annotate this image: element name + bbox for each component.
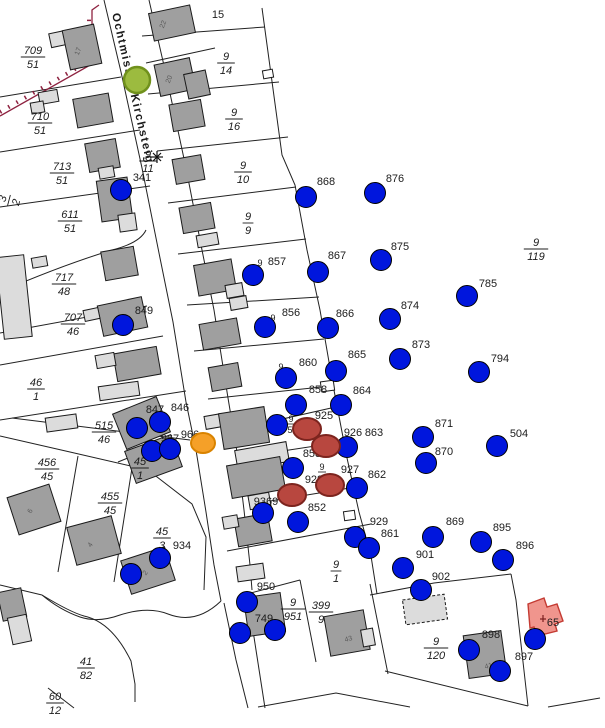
survey-point-blue[interactable]	[265, 620, 286, 641]
survey-point-blue[interactable]	[493, 550, 514, 571]
survey-point-blue[interactable]	[243, 265, 264, 286]
building	[218, 407, 269, 450]
parcel-numerator: 717	[55, 272, 74, 284]
point-label: 950	[257, 581, 275, 593]
point-label: 9	[319, 462, 324, 472]
parcel-number: 9120	[424, 636, 448, 662]
building	[236, 563, 265, 582]
survey-point-red[interactable]	[312, 435, 340, 457]
parcel-number: 910	[234, 160, 252, 186]
building	[229, 296, 248, 311]
point-label: 5	[287, 425, 292, 435]
parcel-numerator: 9	[333, 559, 339, 571]
building	[73, 93, 113, 128]
parcel-number: 51546	[92, 420, 116, 446]
point-label: 874	[401, 300, 419, 312]
parcel-boundary-line	[168, 187, 296, 203]
survey-point-red[interactable]	[278, 484, 306, 506]
map-viewport: Ochtmisser Kirchsteig 172220642434115341…	[0, 0, 605, 728]
parcel-denominator: 2	[10, 198, 23, 208]
survey-point-orange[interactable]	[191, 433, 215, 453]
building	[31, 256, 48, 268]
building	[98, 166, 115, 179]
parcel-denominator: 119	[527, 251, 545, 263]
parcel-denominator: 10	[237, 174, 250, 186]
parcel-number: 99	[243, 211, 254, 237]
point-label: 925	[315, 410, 333, 422]
point-label: 867	[328, 250, 346, 262]
point-label: 785	[479, 278, 497, 290]
point-label: 927	[341, 464, 359, 476]
point-label: 876	[386, 173, 404, 185]
parcel-denominator: 45	[104, 505, 117, 517]
point-label: 846	[171, 402, 189, 414]
point-label: 862	[368, 469, 386, 481]
shed	[262, 69, 273, 79]
survey-point-blue[interactable]	[253, 503, 274, 524]
point-label: 852	[308, 502, 326, 514]
parcel-numerator: 709	[24, 45, 42, 57]
survey-point-blue[interactable]	[230, 623, 251, 644]
survey-point-blue[interactable]	[127, 418, 148, 439]
parcel-numerator: 9	[223, 51, 229, 63]
survey-point-blue[interactable]	[160, 439, 181, 460]
point-label: 875	[391, 241, 409, 253]
parcel-denominator: 51	[64, 223, 76, 235]
parcel-boundary-line	[300, 580, 316, 662]
building	[184, 70, 211, 99]
parcel-numerator: 45	[156, 526, 169, 538]
building	[45, 414, 78, 432]
survey-point-blue[interactable]	[371, 250, 392, 271]
building	[113, 346, 161, 381]
point-label: 898	[482, 629, 500, 641]
building	[95, 352, 116, 368]
point-label: 895	[493, 522, 511, 534]
survey-point-blue[interactable]	[365, 183, 386, 204]
parcel-denominator: 951	[284, 611, 302, 623]
parcel-number: 71351	[50, 161, 74, 187]
parcel-boundary-line	[42, 595, 221, 620]
point-label: 866	[336, 308, 354, 320]
point-label: 870	[435, 446, 453, 458]
point-label: 929	[370, 516, 388, 528]
survey-point-blue[interactable]	[237, 592, 258, 613]
building	[199, 318, 241, 350]
point-label: 864	[353, 385, 371, 397]
parcel-numerator: 515	[95, 420, 114, 432]
building	[361, 628, 376, 647]
building	[101, 246, 139, 280]
parcel-numerator: 9	[231, 107, 237, 119]
point-label: 934	[173, 540, 191, 552]
parcel-numerator: 9	[145, 149, 151, 161]
point-label: 897	[515, 651, 533, 663]
survey-point-blue[interactable]	[413, 427, 434, 448]
parcel-number: 6012	[46, 691, 64, 717]
survey-point-blue[interactable]	[276, 368, 297, 389]
point-label: 869	[446, 516, 464, 528]
parcel-boundary-line	[187, 297, 319, 305]
point-label: 865	[348, 349, 366, 361]
building	[172, 155, 205, 185]
cadastral-map: Ochtmisser Kirchsteig 172220642434115341…	[0, 0, 605, 728]
parcel-number: 61151	[58, 209, 82, 235]
point-label: 504	[510, 428, 528, 440]
survey-point-blue[interactable]	[308, 262, 329, 283]
point-label: 873	[412, 339, 430, 351]
parcel-numerator: 46	[30, 377, 43, 389]
survey-point-blue[interactable]	[469, 362, 490, 383]
parcel-numerator: 9	[290, 597, 296, 609]
parcel-boundary-line	[0, 130, 140, 152]
parcel-numerator: 9	[240, 160, 246, 172]
point-label: 15	[212, 9, 224, 21]
point-label: 860	[299, 357, 317, 369]
survey-point-blue[interactable]	[111, 180, 132, 201]
survey-point-blue[interactable]	[318, 318, 339, 339]
building	[98, 381, 140, 400]
parcel-numerator: 60	[49, 691, 62, 703]
point-label: 794	[491, 353, 509, 365]
parcel-denominator: 16	[228, 121, 241, 133]
building	[196, 232, 219, 247]
shed	[343, 510, 355, 520]
point-label: 857	[268, 256, 286, 268]
parcel-number: 9119	[524, 237, 548, 263]
parcel-denominator: 82	[80, 670, 92, 682]
survey-point-red[interactable]	[316, 474, 344, 496]
parcel-number: 461	[27, 377, 45, 403]
point-label: 896	[516, 540, 534, 552]
parcel-denominator: 120	[427, 650, 446, 662]
parcel-denominator: 9	[245, 225, 251, 237]
point-label: 65	[547, 617, 559, 629]
parcel-boundary-line	[258, 693, 410, 707]
survey-point-blue[interactable]	[416, 453, 437, 474]
survey-point-blue[interactable]	[393, 558, 414, 579]
parcel-denominator: 51	[56, 175, 68, 187]
parcel-denominator: 9	[318, 614, 324, 626]
parcel-number: 45545	[98, 491, 122, 517]
building	[67, 516, 122, 566]
parcel-denominator: 1	[137, 470, 143, 482]
parcel-boundary-line	[157, 137, 288, 151]
survey-point-blue[interactable]	[471, 532, 492, 553]
parcel-denominator: 46	[67, 326, 80, 338]
parcel-number: 45645	[35, 457, 59, 483]
parcel-denominator: 1	[33, 391, 39, 403]
parcel-numerator: 455	[101, 491, 120, 503]
survey-point-blue[interactable]	[283, 458, 304, 479]
point-label: 856	[282, 307, 300, 319]
parcel-numerator: 611	[61, 209, 79, 221]
parcel-number: 9951	[281, 597, 305, 623]
survey-point-blue[interactable]	[487, 436, 508, 457]
parcel-denominator: 12	[49, 705, 61, 717]
survey-point-blue[interactable]	[255, 317, 276, 338]
building	[149, 5, 196, 41]
parcel-denominator: 11	[142, 163, 153, 175]
survey-point-blue[interactable]	[490, 661, 511, 682]
parcel-numerator: 399	[312, 600, 330, 612]
parcel-number: 71748	[52, 272, 76, 298]
survey-point-blue[interactable]	[150, 412, 171, 433]
point-label: 863	[365, 427, 383, 439]
point-label: 871	[435, 418, 453, 430]
building	[83, 308, 100, 322]
building	[222, 515, 239, 529]
parcel-numerator: 710	[31, 111, 50, 123]
building	[0, 255, 32, 339]
survey-point-blue[interactable]	[267, 415, 288, 436]
parcel-numerator: 41	[80, 656, 92, 668]
building	[118, 213, 137, 232]
survey-point-blue[interactable]	[347, 478, 368, 499]
survey-point-blue[interactable]	[286, 395, 307, 416]
survey-point-blue[interactable]	[390, 349, 411, 370]
point-label: 868	[317, 176, 335, 188]
building	[7, 484, 61, 535]
parcel-number: 914	[217, 51, 235, 77]
parcel-number: 916	[225, 107, 243, 133]
parcel-denominator: 1	[333, 573, 339, 585]
parcel-boundary-line	[224, 603, 248, 708]
survey-point-blue[interactable]	[288, 512, 309, 533]
building	[227, 457, 286, 499]
building	[62, 24, 102, 70]
point-label: 901	[416, 549, 434, 561]
survey-point-blue[interactable]	[121, 564, 142, 585]
parcel-number: 4182	[77, 656, 95, 682]
survey-point-blue[interactable]	[326, 361, 347, 382]
survey-point-blue[interactable]	[296, 187, 317, 208]
parcel-number: 91	[331, 559, 342, 585]
parcel-numerator: 456	[38, 457, 57, 469]
survey-point-blue[interactable]	[150, 548, 171, 569]
survey-point-blue[interactable]	[331, 395, 352, 416]
survey-point-blue[interactable]	[380, 309, 401, 330]
survey-point-blue[interactable]	[423, 527, 444, 548]
parcel-numerator: 9	[533, 237, 539, 249]
survey-point-blue[interactable]	[457, 286, 478, 307]
parcel-denominator: 45	[41, 471, 54, 483]
survey-point-blue[interactable]	[113, 315, 134, 336]
parcel-denominator: 14	[220, 65, 232, 77]
parcel-denominator: 48	[58, 286, 71, 298]
building	[208, 363, 242, 392]
parcel-denominator: 46	[98, 434, 111, 446]
parcel-number: 71051	[28, 111, 52, 137]
parcel-numerator: 9	[245, 211, 251, 223]
parcel-number: 70951	[21, 45, 45, 71]
survey-point-blue[interactable]	[459, 640, 480, 661]
parcel-boundary-line	[42, 595, 135, 702]
parcel-numerator: 9	[433, 636, 439, 648]
parcel-number: 70746	[61, 312, 85, 338]
parcel-numerator: 707	[64, 312, 83, 324]
parcel-boundary-line	[548, 698, 600, 707]
point-label: 858	[309, 384, 327, 396]
parcel-denominator: 51	[27, 59, 39, 71]
survey-point-blue[interactable]	[525, 629, 546, 650]
survey-point-blue[interactable]	[411, 580, 432, 601]
parcel-numerator: 713	[53, 161, 72, 173]
survey-point-green[interactable]	[124, 67, 150, 93]
building	[7, 614, 31, 644]
building	[169, 99, 205, 131]
point-label: 849	[135, 305, 153, 317]
point-label: 902	[432, 571, 450, 583]
survey-point-blue[interactable]	[359, 538, 380, 559]
parcel-denominator: 51	[34, 125, 46, 137]
building	[179, 202, 215, 233]
point-label: 861	[381, 528, 399, 540]
